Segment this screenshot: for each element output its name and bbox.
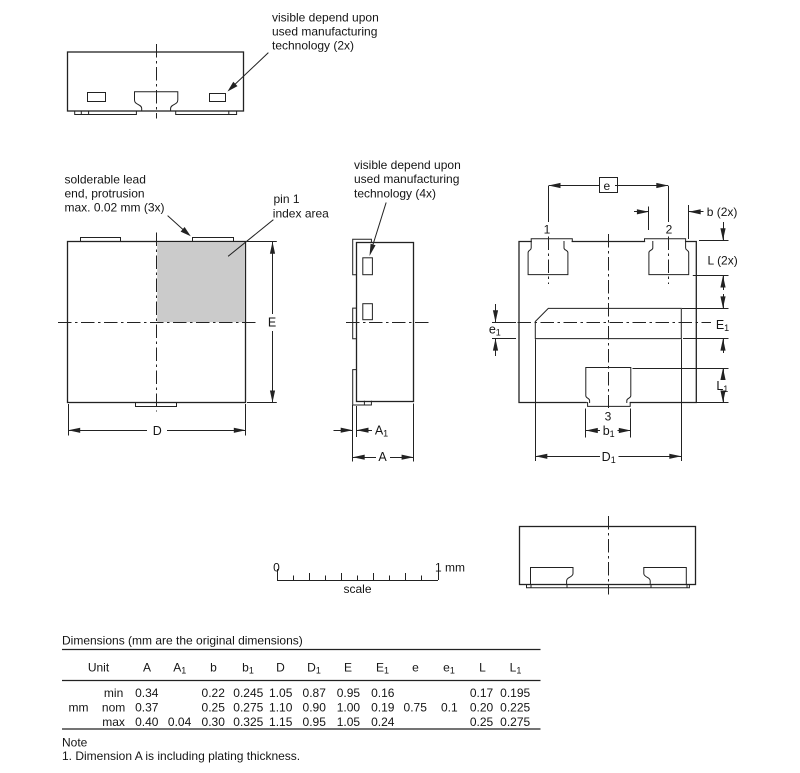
- svg-text:0: 0: [273, 561, 280, 575]
- svg-text:0.325: 0.325: [233, 715, 263, 729]
- svg-text:1: 1: [544, 223, 551, 237]
- svg-text:E: E: [344, 661, 352, 675]
- svg-text:0.195: 0.195: [500, 686, 530, 700]
- svg-text:0.24: 0.24: [371, 715, 395, 729]
- svg-text:1.10: 1.10: [269, 701, 293, 715]
- svg-text:0.17: 0.17: [470, 686, 494, 700]
- svg-text:A: A: [378, 450, 387, 464]
- svg-text:0.37: 0.37: [135, 701, 159, 715]
- svg-text:0.95: 0.95: [303, 715, 327, 729]
- svg-text:visible depend upon: visible depend upon: [354, 158, 461, 172]
- svg-text:0.275: 0.275: [500, 715, 530, 729]
- svg-text:0.04: 0.04: [168, 715, 192, 729]
- svg-text:mm: mm: [69, 701, 89, 715]
- svg-text:0.34: 0.34: [135, 686, 159, 700]
- svg-text:technology (2x): technology (2x): [272, 39, 354, 53]
- svg-text:0.90: 0.90: [303, 701, 327, 715]
- svg-text:max: max: [102, 715, 125, 729]
- svg-text:0.19: 0.19: [371, 701, 395, 715]
- svg-text:index area: index area: [273, 206, 329, 220]
- svg-text:D: D: [276, 661, 285, 675]
- svg-text:end, protrusion: end, protrusion: [65, 187, 145, 201]
- svg-text:1.05: 1.05: [269, 686, 293, 700]
- svg-text:1. Dimension A is including pl: 1. Dimension A is including plating thic…: [62, 749, 300, 763]
- svg-text:e: e: [412, 661, 419, 675]
- svg-text:min: min: [104, 686, 123, 700]
- svg-text:0.22: 0.22: [202, 686, 226, 700]
- svg-text:1.15: 1.15: [269, 715, 293, 729]
- svg-text:used manufacturing: used manufacturing: [272, 25, 377, 39]
- svg-text:A: A: [143, 661, 151, 675]
- svg-text:0.16: 0.16: [371, 686, 395, 700]
- svg-text:0.75: 0.75: [404, 701, 428, 715]
- svg-text:solderable lead: solderable lead: [65, 173, 146, 187]
- svg-text:E: E: [268, 316, 276, 330]
- svg-text:0.275: 0.275: [233, 701, 263, 715]
- svg-text:L: L: [479, 661, 486, 675]
- svg-text:0.87: 0.87: [303, 686, 327, 700]
- svg-text:0.30: 0.30: [202, 715, 226, 729]
- svg-text:0.1: 0.1: [441, 701, 458, 715]
- svg-text:0.40: 0.40: [135, 715, 159, 729]
- svg-text:b: b: [210, 661, 217, 675]
- svg-text:visible depend upon: visible depend upon: [272, 11, 379, 25]
- svg-text:pin 1: pin 1: [274, 192, 300, 206]
- svg-text:1.00: 1.00: [337, 701, 361, 715]
- svg-text:used manufacturing: used manufacturing: [354, 172, 459, 186]
- svg-text:L (2x): L (2x): [708, 254, 738, 268]
- svg-text:scale: scale: [343, 582, 371, 596]
- svg-text:0.25: 0.25: [202, 701, 226, 715]
- svg-text:0.95: 0.95: [337, 686, 361, 700]
- svg-text:b (2x): b (2x): [707, 205, 738, 219]
- svg-text:technology (4x): technology (4x): [354, 187, 436, 201]
- svg-text:0.225: 0.225: [500, 701, 530, 715]
- svg-text:e: e: [603, 179, 610, 193]
- svg-text:3: 3: [605, 410, 612, 424]
- svg-text:Note: Note: [62, 736, 88, 750]
- svg-text:max. 0.02 mm (3x): max. 0.02 mm (3x): [65, 201, 165, 215]
- svg-text:1 mm: 1 mm: [435, 561, 465, 575]
- svg-text:0.25: 0.25: [470, 715, 494, 729]
- svg-text:Dimensions (mm are the origina: Dimensions (mm are the original dimensio…: [62, 633, 303, 647]
- svg-text:2: 2: [666, 223, 673, 237]
- svg-text:nom: nom: [102, 701, 125, 715]
- svg-text:D: D: [153, 424, 162, 438]
- svg-text:0.245: 0.245: [233, 686, 263, 700]
- svg-text:1.05: 1.05: [337, 715, 361, 729]
- svg-text:Unit: Unit: [88, 661, 110, 675]
- svg-text:0.20: 0.20: [470, 701, 494, 715]
